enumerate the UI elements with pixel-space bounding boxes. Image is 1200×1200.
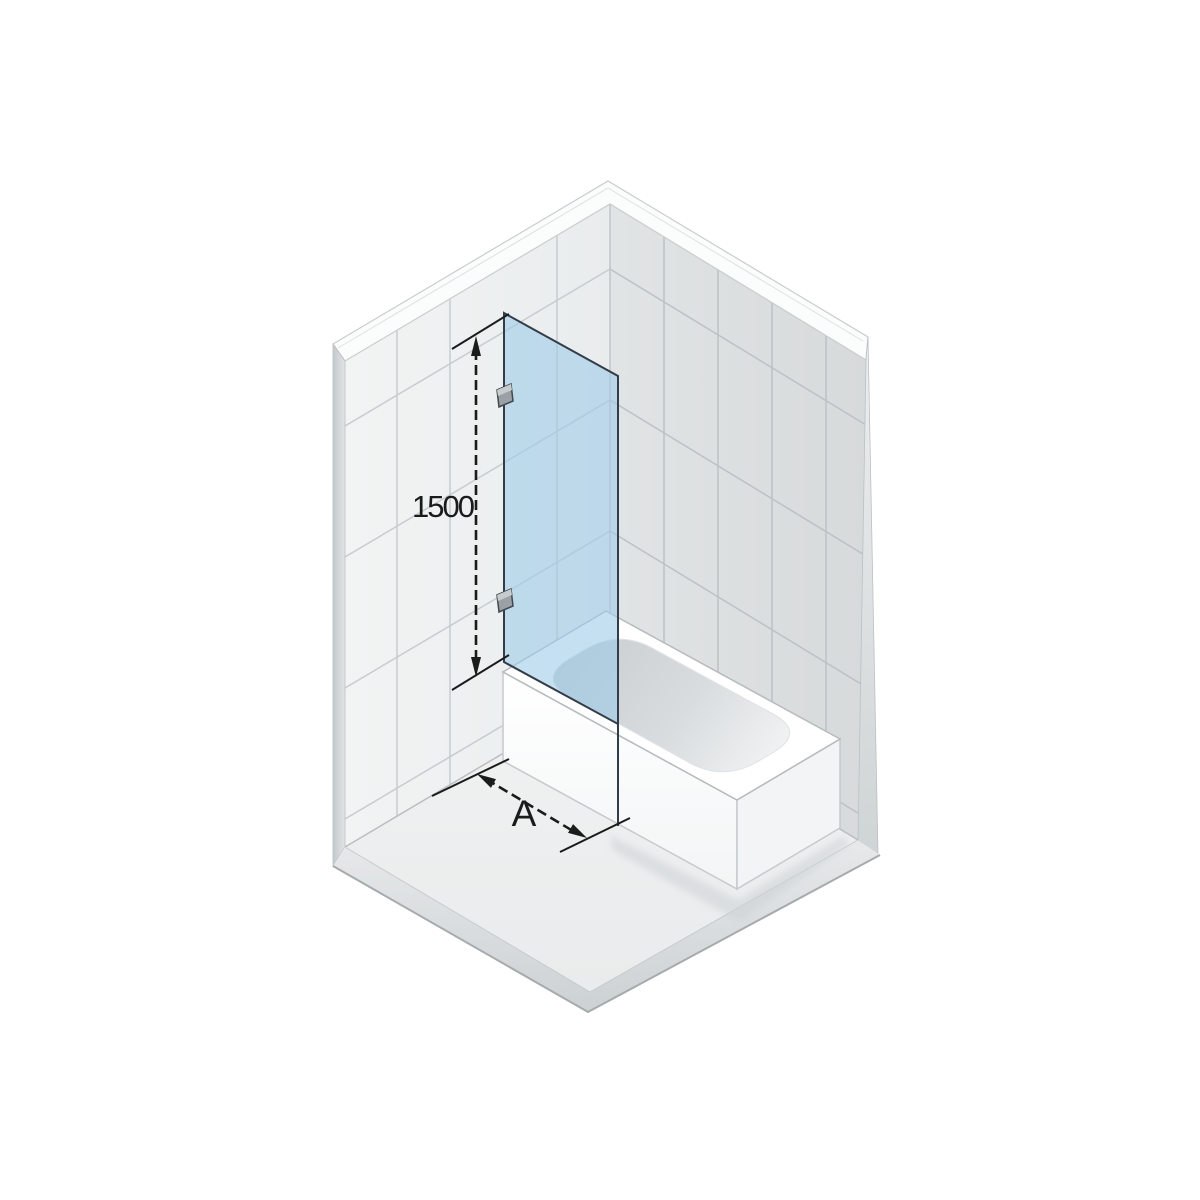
wall-left-outer-edge xyxy=(333,344,345,866)
glass-panel xyxy=(504,313,618,724)
height-dimension-label: 1500 xyxy=(412,489,475,524)
width-dimension-label: A xyxy=(512,793,537,834)
isometric-bathroom-diagram: 1500 A xyxy=(0,0,1200,1200)
diagram-page: 1500 A xyxy=(0,0,1200,1200)
